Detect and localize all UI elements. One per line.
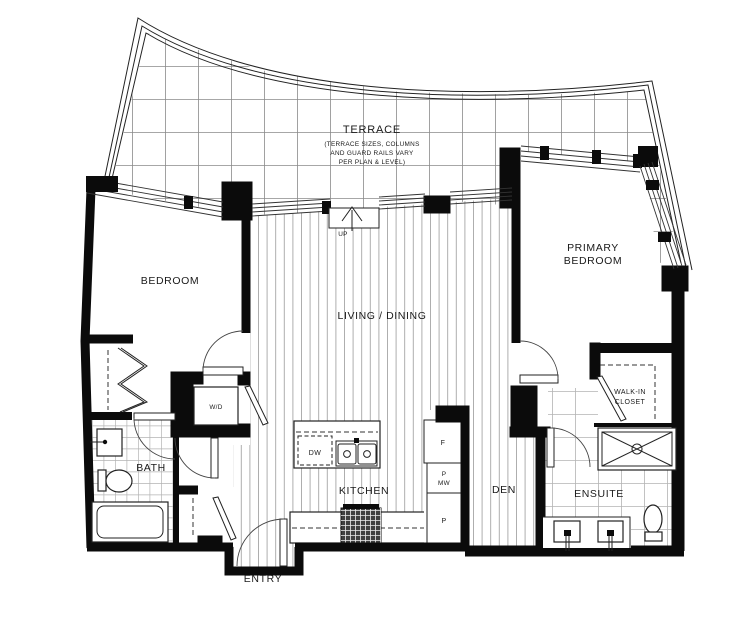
terrace-post [86,176,118,192]
ensuite-toilet [644,505,662,541]
primary-bedroom-label-line1: PRIMARY [567,242,619,254]
kitchen-island: DW [294,421,380,468]
wd-label: W/D [209,404,222,411]
living-dining-label: LIVING / DINING [338,310,427,322]
fridge-label: F [441,440,446,447]
walkin-label-line1: WALK-IN [614,389,646,396]
entry-label: ENTRY [244,573,282,585]
bedroom-label: BEDROOM [141,275,199,287]
ensuite-vanity [543,517,631,551]
up-label: UP [338,231,347,238]
dishwasher-label: DW [309,450,321,457]
terrace-label: TERRACE [343,124,401,136]
terrace-note-line3: PER PLAN & LEVEL) [339,159,406,166]
shower [598,428,676,470]
pantry-mw-label1: P [442,471,447,478]
primary-bedroom-label-line2: BEDROOM [564,255,622,267]
pantry-label: P [441,518,446,525]
pantry-mw-label2: MW [438,480,451,487]
den-label: DEN [492,484,516,496]
bathtub [92,502,168,542]
terrace-note-line1: (TERRACE SIZES, COLUMNS [324,141,419,148]
kitchen-label: KITCHEN [339,485,389,497]
wd-unit: W/D [194,387,238,425]
appliance-column: F P MW P [424,410,463,547]
bath-toilet [98,470,132,492]
terrace-note-line2: AND GUARD RAILS VARY [330,150,414,157]
walkin-label-line2: CLOSET [615,399,646,406]
floor-plan: TERRACE (TERRACE SIZES, COLUMNS AND GUAR… [0,0,756,633]
ensuite-label: ENSUITE [574,488,624,500]
cooktop [341,504,381,543]
bath-label: BATH [136,462,166,474]
